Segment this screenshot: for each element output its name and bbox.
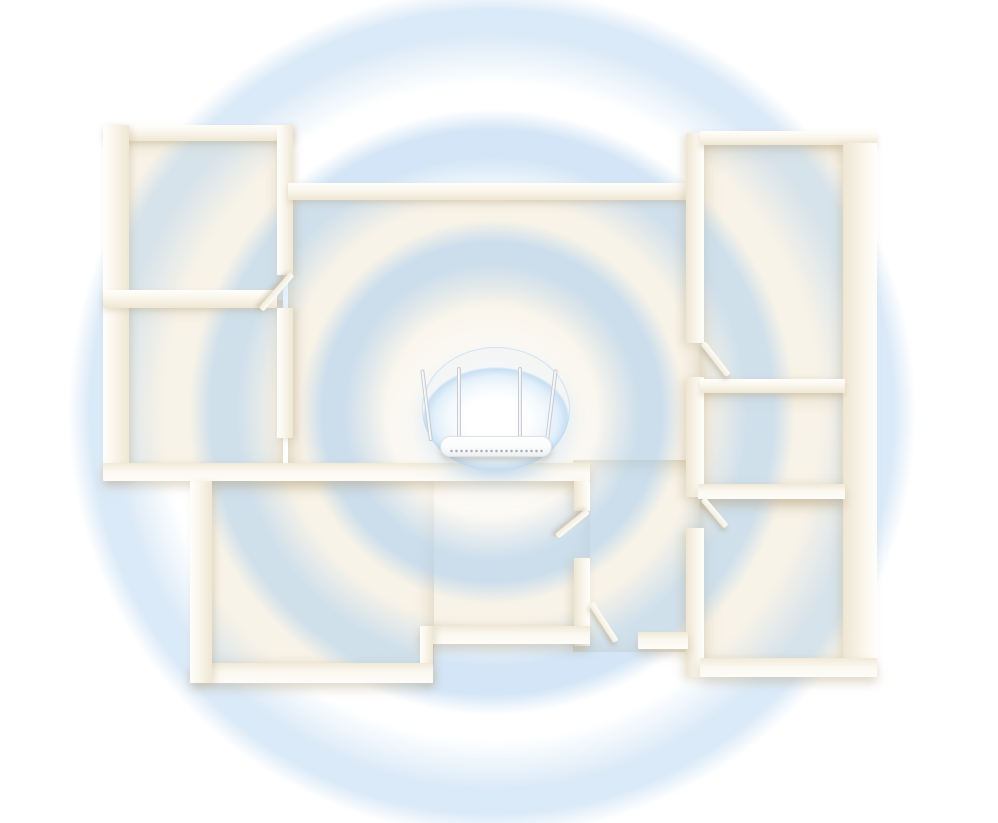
wall-segment — [700, 379, 845, 393]
wall-segment — [843, 143, 877, 667]
wall-segment — [686, 528, 704, 677]
wall-segment — [288, 183, 700, 200]
wall-segment — [103, 125, 293, 141]
wall-segment — [574, 481, 590, 511]
wall-segment — [190, 481, 212, 683]
wall-segment — [686, 133, 704, 343]
router-antenna — [518, 367, 522, 439]
wall-segment — [103, 290, 277, 308]
wall-segment — [686, 377, 704, 497]
wall-segment — [700, 658, 877, 677]
wall-segment — [277, 308, 293, 438]
wall-segment — [277, 125, 293, 275]
wall-segment — [190, 663, 433, 683]
wall-segment — [698, 484, 845, 499]
router-antenna — [457, 367, 461, 439]
wall-segment — [638, 632, 688, 649]
floorplan-scene — [0, 0, 998, 823]
router-vents-icon — [449, 448, 544, 454]
wall-segment — [420, 626, 590, 644]
